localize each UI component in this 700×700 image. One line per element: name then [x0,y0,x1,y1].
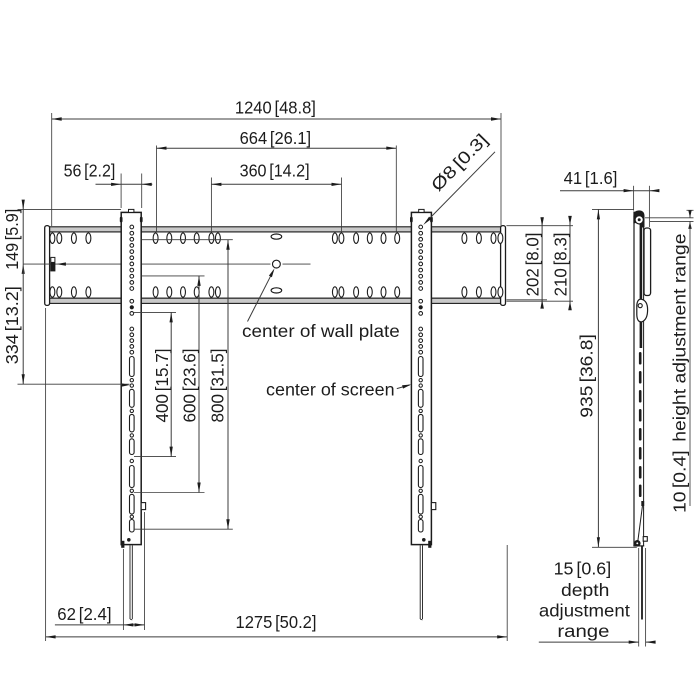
svg-text:202 [8.0]: 202 [8.0] [523,233,543,297]
svg-text:664 [26.1]: 664 [26.1] [240,128,312,148]
svg-text:149 [5.9]: 149 [5.9] [2,209,22,270]
svg-text:334 [13.2]: 334 [13.2] [2,286,22,364]
svg-text:adjustment: adjustment [539,601,630,621]
svg-text:center of wall plate: center of wall plate [242,321,400,341]
svg-text:41 [1.6]: 41 [1.6] [564,168,618,188]
svg-text:56 [2.2]: 56 [2.2] [64,161,116,181]
svg-text:15 [0.6]: 15 [0.6] [554,559,612,579]
svg-text:depth: depth [561,580,609,600]
svg-text:600 [23.6]: 600 [23.6] [179,349,199,423]
svg-text:800 [31.5]: 800 [31.5] [208,349,228,423]
svg-text:360 [14.2]: 360 [14.2] [240,161,310,181]
svg-text:1240 [48.8]: 1240 [48.8] [235,97,316,117]
svg-text:935 [36.8]: 935 [36.8] [577,334,597,418]
svg-text:center of screen: center of screen [266,379,395,399]
svg-text:400 [15.7]: 400 [15.7] [152,349,172,423]
svg-text:210 [8.3]: 210 [8.3] [550,233,570,297]
svg-text:range: range [557,621,609,641]
svg-text:1275 [50.2]: 1275 [50.2] [236,612,317,632]
svg-text:62 [2.4]: 62 [2.4] [57,604,111,624]
svg-text:10 [0.4] height adjustment ra: 10 [0.4] height adjustment range [670,234,690,514]
